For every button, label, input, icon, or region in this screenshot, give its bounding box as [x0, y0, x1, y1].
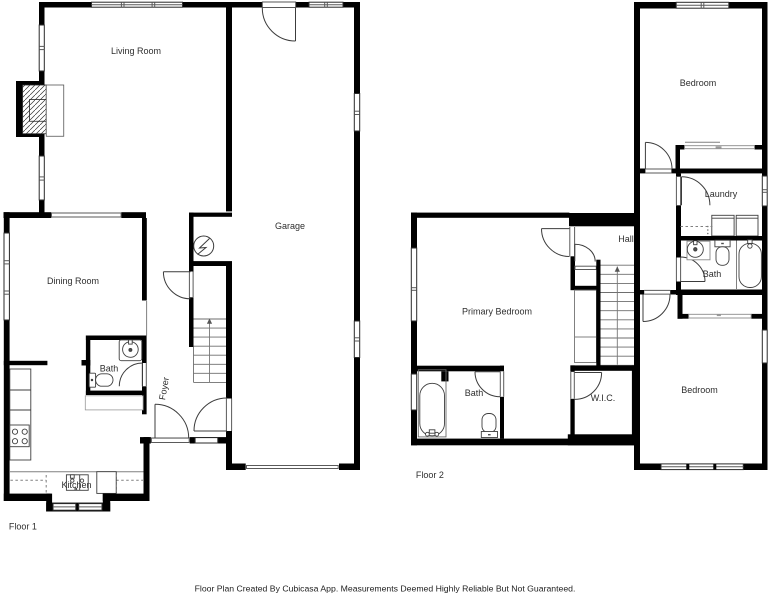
- svg-text:Living Room: Living Room: [111, 46, 161, 56]
- svg-text:Bath: Bath: [703, 269, 722, 279]
- svg-text:Floor Plan Created By Cubicasa: Floor Plan Created By Cubicasa App. Meas…: [195, 583, 576, 593]
- svg-text:Floor 2: Floor 2: [416, 470, 444, 480]
- svg-text:Garage: Garage: [275, 221, 305, 231]
- svg-text:W.I.C.: W.I.C.: [591, 393, 616, 403]
- svg-text:Bedroom: Bedroom: [680, 78, 717, 88]
- svg-text:Bath: Bath: [100, 364, 119, 374]
- svg-text:Primary Bedroom: Primary Bedroom: [462, 307, 532, 317]
- svg-text:Dining Room: Dining Room: [47, 276, 99, 286]
- svg-text:Floor 1: Floor 1: [9, 522, 37, 532]
- svg-text:Bath: Bath: [465, 388, 484, 398]
- svg-text:Laundry: Laundry: [705, 189, 738, 199]
- svg-text:Hall: Hall: [618, 234, 634, 244]
- svg-text:Bedroom: Bedroom: [681, 385, 718, 395]
- svg-text:Kitchen: Kitchen: [61, 480, 91, 490]
